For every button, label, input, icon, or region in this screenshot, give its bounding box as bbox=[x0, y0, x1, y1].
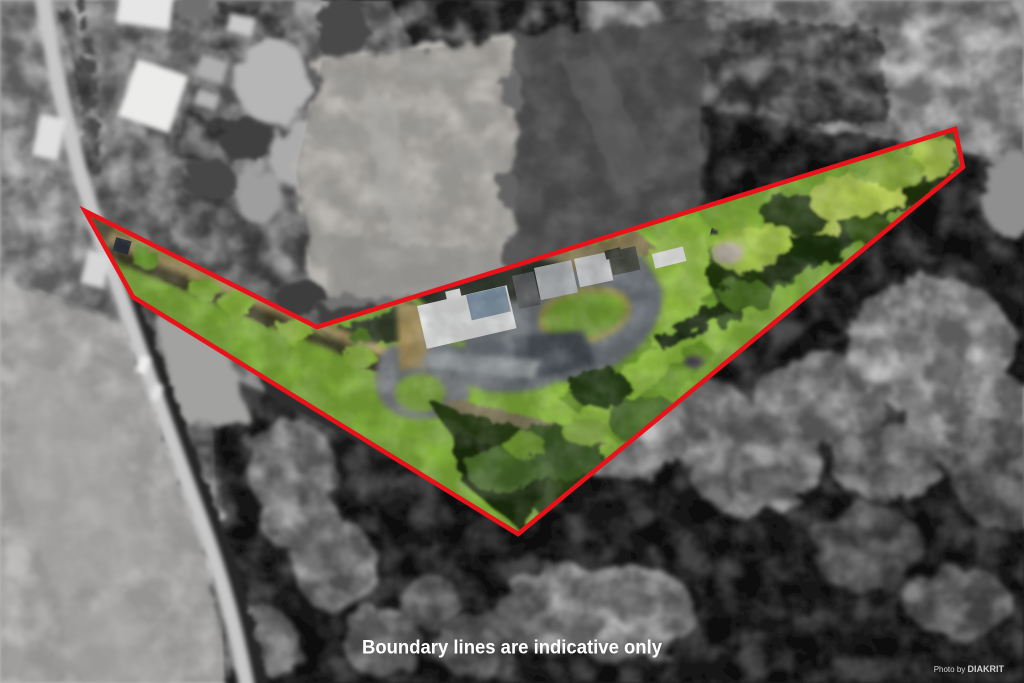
svg-text:Photo by DIAKRIT: Photo by DIAKRIT bbox=[934, 664, 1005, 674]
svg-text:Boundary lines are indicative: Boundary lines are indicative only bbox=[362, 637, 662, 659]
